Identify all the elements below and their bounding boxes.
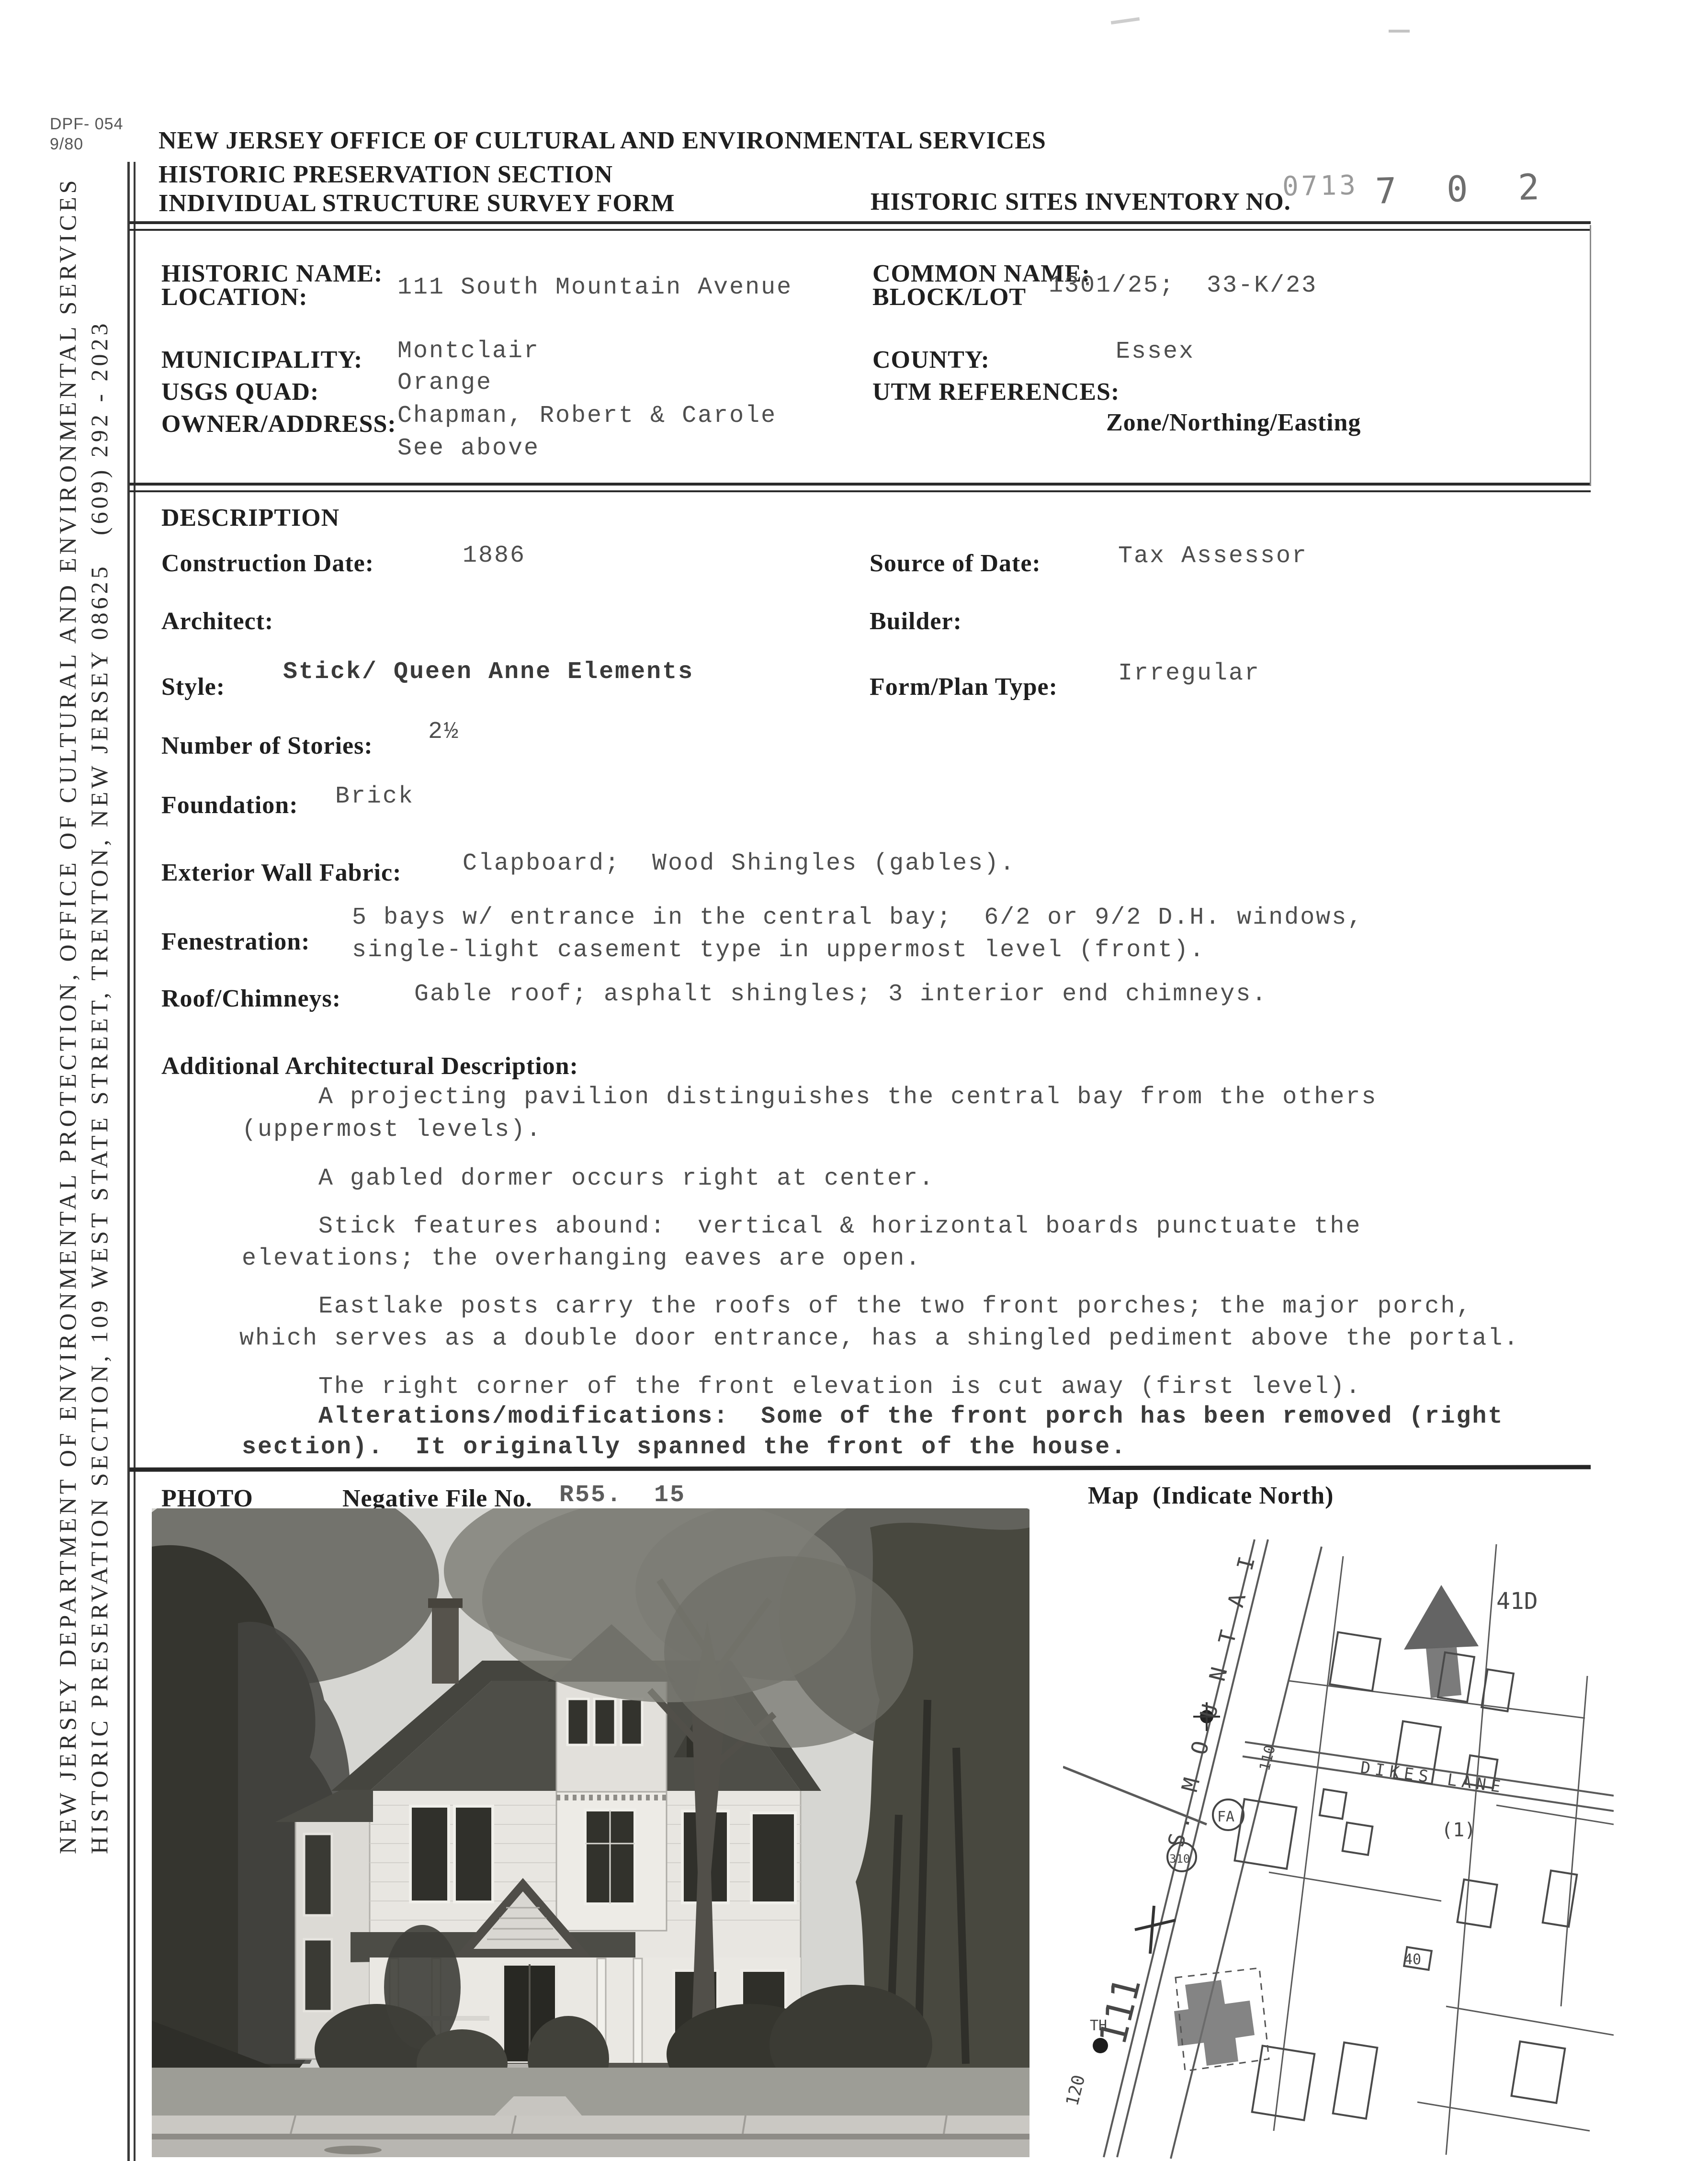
- additional-paragraph-line: A gabled dormer occurs right at center.: [318, 1165, 935, 1192]
- additional-paragraph-line: Alterations/modifications: Some of the f…: [318, 1403, 1504, 1430]
- owner-address-value-line1: Chapman, Robert & Carole: [397, 402, 777, 430]
- style-label: Style:: [161, 673, 225, 701]
- header-agency-line1: NEW JERSEY OFFICE OF CULTURAL AND ENVIRO…: [158, 126, 1046, 155]
- header-agency-line2: HISTORIC PRESERVATION SECTION: [158, 160, 613, 189]
- additional-paragraph-line: elevations; the overhanging eaves are op…: [242, 1245, 921, 1272]
- additional-paragraph-line: (uppermost levels).: [242, 1116, 542, 1143]
- foundation-label: Foundation:: [161, 791, 298, 819]
- municipality-value: Montclair: [397, 338, 540, 365]
- utm-zone-northing-easting-label: Zone/Northing/Easting: [1106, 408, 1361, 437]
- parcel-41d-label: 41D: [1496, 1588, 1538, 1615]
- source-of-date-label: Source of Date:: [870, 549, 1041, 577]
- circle-310-label: 310: [1169, 1852, 1190, 1866]
- description-divider-rule: [129, 1465, 1591, 1471]
- construction-date-label: Construction Date:: [161, 549, 374, 577]
- sidewalk: [152, 2116, 1029, 2134]
- block-lot-value: 1301/25; 33-K/23: [1049, 272, 1317, 299]
- additional-paragraph-line: which serves as a double door entrance, …: [239, 1325, 1519, 1352]
- usgs-quad-value: Orange: [397, 369, 492, 396]
- header-form-title: INDIVIDUAL STRUCTURE SURVEY FORM: [158, 189, 675, 217]
- curb: [152, 2134, 1029, 2139]
- construction-date-value: 1886: [463, 542, 526, 569]
- survey-form-page: NEW JERSEY DEPARTMENT OF ENVIRONMENTAL P…: [0, 0, 1708, 2161]
- parcel-line: [1417, 2102, 1590, 2131]
- form-date: 9/80: [50, 135, 83, 154]
- municipality-label: MUNICIPALITY:: [161, 346, 362, 374]
- foundation-value: Brick: [335, 783, 414, 810]
- additional-paragraph-line: The right corner of the front elevation …: [318, 1373, 1361, 1401]
- subject-house-footprint: [1174, 1968, 1269, 2071]
- road-label: S. M O U N T A I N: [1163, 1537, 1270, 1850]
- identification-divider-rule: [129, 483, 1591, 492]
- th-label: TH: [1090, 2017, 1107, 2034]
- roof-chimneys-value: Gable roof; asphalt shingles; 3 interior…: [414, 981, 1267, 1008]
- house-number-label: 111: [1091, 1973, 1149, 2049]
- additional-description-label: Additional Architectural Description:: [161, 1052, 578, 1080]
- usgs-quad-label: USGS QUAD:: [161, 378, 319, 406]
- map-label: Map (Indicate North): [1088, 1482, 1334, 1510]
- additional-paragraph-line: Stick features abound: vertical & horizo…: [318, 1213, 1361, 1240]
- source-of-date-value: Tax Assessor: [1118, 543, 1308, 570]
- fenestration-value-line1: 5 bays w/ entrance in the central bay; 6…: [352, 904, 1363, 931]
- form-plan-type-label: Form/Plan Type:: [870, 673, 1058, 701]
- house-photo: [152, 1508, 1029, 2157]
- additional-paragraph-line: A projecting pavilion distinguishes the …: [318, 1084, 1377, 1111]
- additional-paragraph-line: Eastlake posts carry the roofs of the tw…: [318, 1293, 1472, 1320]
- location-value: 111 South Mountain Avenue: [397, 274, 792, 301]
- builder-label: Builder:: [870, 607, 962, 635]
- description-section-title: DESCRIPTION: [161, 504, 339, 532]
- style-value: Stick/ Queen Anne Elements: [283, 658, 694, 686]
- county-label: COUNTY:: [872, 346, 990, 374]
- exterior-wall-fabric-label: Exterior Wall Fabric:: [161, 859, 401, 887]
- box-40-label: 40: [1404, 1951, 1421, 1968]
- dormer-windows: [567, 1699, 642, 1745]
- location-label: LOCATION:: [161, 283, 308, 311]
- owner-address-value-line2: See above: [397, 435, 540, 462]
- lawn: [152, 2068, 1029, 2116]
- lot-note-label: (1): [1441, 1819, 1476, 1841]
- map-sketch: S. M O U N T A I N DIKES LANE 41D (1) FA…: [1063, 1537, 1614, 2160]
- parcel-line: [1446, 2006, 1614, 2035]
- negative-file-value: R55. 15: [559, 1482, 686, 1509]
- number-of-stories-value: 2½: [428, 718, 460, 746]
- foreground-tree-foliage: [664, 1556, 913, 1748]
- exterior-wall-fabric-value: Clapboard; Wood Shingles (gables).: [463, 850, 1016, 877]
- block-lot-label: BLOCK/LOT: [872, 283, 1026, 311]
- form-plan-type-value: Irregular: [1118, 660, 1260, 687]
- road-edge: [1171, 1547, 1322, 2159]
- building-footprint: [1235, 1632, 1577, 2120]
- header-divider-rule: [129, 221, 1591, 231]
- owner-address-label: OWNER/ADDRESS:: [161, 410, 396, 438]
- parcel-line: [1269, 1872, 1441, 1901]
- address-120-label: 120: [1063, 2073, 1089, 2108]
- fa-circle-label: FA: [1217, 1809, 1234, 1825]
- lot-line: [1561, 1676, 1587, 2006]
- inventory-stamp-prefix: 0713: [1282, 170, 1358, 203]
- left-vertical-rule: [127, 162, 136, 2161]
- architect-label: Architect:: [161, 607, 273, 635]
- utm-references-label: UTM REFERENCES:: [872, 378, 1120, 406]
- scan-artifact: [1111, 17, 1140, 24]
- additional-paragraph-line: section). It originally spanned the fron…: [242, 1434, 1127, 1461]
- scan-artifact: [1389, 30, 1410, 33]
- inventory-stamp-number: 7 0 2: [1375, 166, 1554, 212]
- sidebar-address-line: HISTORIC PRESERVATION SECTION, 109 WEST …: [85, 320, 113, 1854]
- fenestration-value-line2: single-light casement type in uppermost …: [352, 937, 1205, 964]
- form-number: DPF- 054: [50, 115, 124, 134]
- chimney-cap: [428, 1598, 463, 1608]
- roof-chimneys-label: Roof/Chimneys:: [161, 984, 341, 1013]
- brick-chimney: [432, 1602, 459, 1684]
- street-label: DIKES LANE: [1359, 1758, 1506, 1797]
- number-of-stories-label: Number of Stories:: [161, 732, 373, 760]
- road-debris: [324, 2146, 382, 2154]
- county-value: Essex: [1116, 338, 1195, 365]
- right-border-segment: [1590, 225, 1591, 486]
- fenestration-label: Fenestration:: [161, 928, 310, 956]
- road: [152, 2139, 1029, 2157]
- sidebar-agency-line: NEW JERSEY DEPARTMENT OF ENVIRONMENTAL P…: [54, 177, 81, 1854]
- inventory-number-label: HISTORIC SITES INVENTORY NO.: [871, 188, 1291, 216]
- house-number-alt-label: 110: [1256, 1743, 1279, 1773]
- lot-line: [1274, 1556, 1343, 2131]
